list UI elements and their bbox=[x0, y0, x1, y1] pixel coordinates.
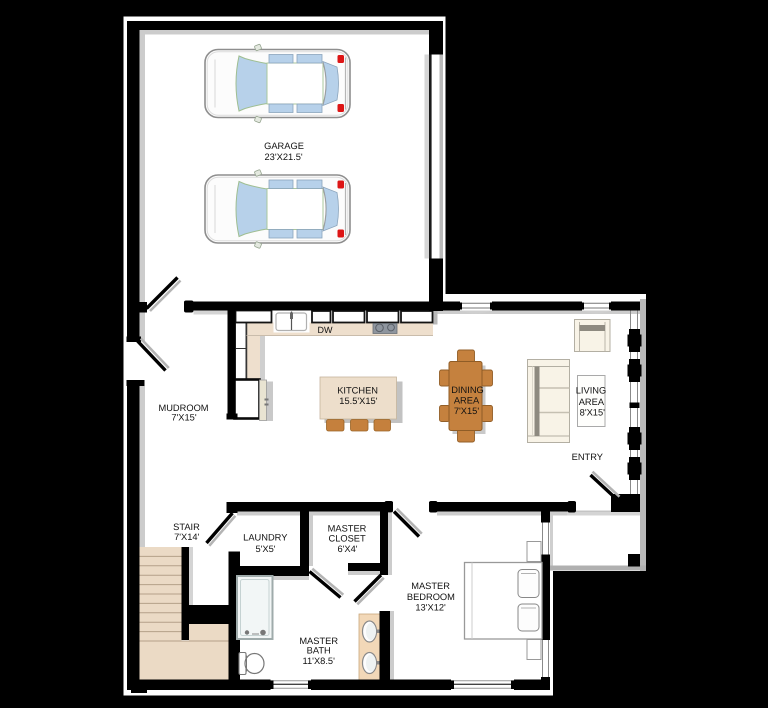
svg-text:CLOSET: CLOSET bbox=[328, 534, 366, 544]
svg-text:ENTRY: ENTRY bbox=[572, 452, 603, 462]
svg-text:KITCHEN: KITCHEN bbox=[337, 386, 378, 396]
svg-text:5'X5': 5'X5' bbox=[255, 544, 275, 554]
svg-text:8'X15': 8'X15' bbox=[580, 408, 605, 418]
svg-text:MUDROOM: MUDROOM bbox=[158, 403, 208, 413]
svg-text:11'X8.5': 11'X8.5' bbox=[303, 656, 336, 666]
svg-text:MASTER: MASTER bbox=[328, 524, 367, 534]
svg-text:7'X15': 7'X15' bbox=[454, 406, 479, 416]
svg-text:BATH: BATH bbox=[307, 645, 331, 655]
svg-text:13'X12': 13'X12' bbox=[415, 603, 446, 613]
svg-text:GARAGE: GARAGE bbox=[264, 141, 304, 151]
svg-text:AREA: AREA bbox=[454, 396, 480, 406]
svg-text:7'X14': 7'X14' bbox=[174, 532, 199, 542]
svg-text:23'X21.5': 23'X21.5' bbox=[265, 152, 303, 162]
svg-text:LIVING: LIVING bbox=[576, 385, 606, 395]
svg-text:STAIR: STAIR bbox=[173, 522, 200, 532]
svg-text:DW: DW bbox=[318, 325, 333, 335]
svg-text:MASTER: MASTER bbox=[411, 581, 450, 591]
svg-text:6'X4': 6'X4' bbox=[337, 544, 357, 554]
svg-text:MASTER: MASTER bbox=[299, 636, 338, 646]
svg-text:15.5'X15': 15.5'X15' bbox=[339, 396, 377, 406]
svg-text:LAUNDRY: LAUNDRY bbox=[243, 532, 287, 542]
svg-text:AREA: AREA bbox=[579, 397, 605, 407]
svg-text:DINING: DINING bbox=[451, 385, 484, 395]
svg-text:7'X15': 7'X15' bbox=[171, 413, 196, 423]
svg-text:BEDROOM: BEDROOM bbox=[407, 592, 455, 602]
